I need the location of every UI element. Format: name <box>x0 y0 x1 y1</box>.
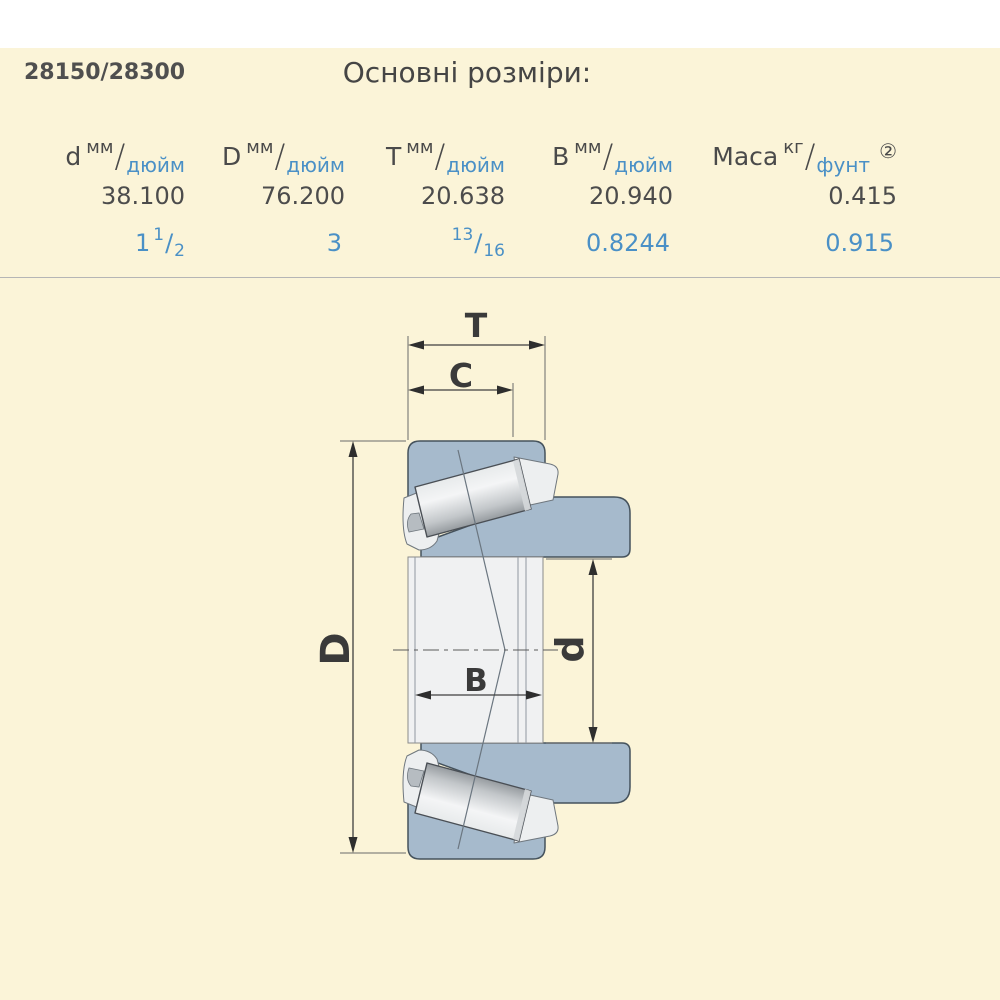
arrowhead <box>349 441 358 457</box>
cage-bottom-left <box>403 750 442 814</box>
outer-ring-top <box>408 441 545 501</box>
label-B: B <box>464 663 488 699</box>
arrowhead <box>415 691 431 700</box>
dim-symbol: D <box>222 142 241 171</box>
unit-slash: / <box>114 137 125 175</box>
arrowhead <box>589 559 598 575</box>
unit-kg: кг <box>783 137 803 158</box>
unit-inch: дюйм <box>126 153 185 177</box>
arrowhead <box>589 727 598 743</box>
inch-value-mass: 0.915 <box>673 220 897 266</box>
tapered-roller-top <box>415 459 531 537</box>
unit-mm: мм <box>86 137 113 158</box>
dim-symbol: d <box>65 142 81 171</box>
arrowhead <box>529 341 545 350</box>
arrowhead <box>349 837 358 853</box>
dim-symbol: T <box>386 142 401 171</box>
cage-top-right <box>514 457 558 507</box>
unit-slash: / <box>434 137 445 175</box>
inner-ring-bottom <box>421 743 630 803</box>
dim-symbol: B <box>552 142 569 171</box>
inner-ring-top <box>421 497 630 557</box>
unit-slash: / <box>274 137 285 175</box>
metric-value-D: 76.200 <box>185 176 345 216</box>
footnote-mark: ② <box>879 139 897 163</box>
outer-ring-bottom <box>408 799 545 859</box>
part-number: 28150/28300 <box>24 60 185 85</box>
metric-value-B: 20.940 <box>505 176 673 216</box>
label-T: T <box>465 306 488 345</box>
label-C: C <box>449 356 473 395</box>
arrowhead <box>526 691 542 700</box>
inch-value-D: 3 <box>185 220 345 266</box>
catalog-page: 28150/28300 Основні розміри: d мм / дюйм… <box>0 0 1000 1000</box>
cage-top-left <box>403 486 442 550</box>
page-title: Основні розміри: <box>343 56 591 89</box>
arrowhead <box>497 386 513 395</box>
inch-values-row: 1 1 / 2 3 13 / 16 0.82 <box>0 220 897 266</box>
unit-inch: дюйм <box>614 153 673 177</box>
unit-inch: дюйм <box>286 153 345 177</box>
page-body: 28150/28300 Основні розміри: d мм / дюйм… <box>0 48 1000 1000</box>
inch-value-T: 13 / 16 <box>345 220 505 266</box>
separator-line <box>0 277 1000 278</box>
inch-value-B: 0.8244 <box>505 220 673 266</box>
cage-claw-bottom <box>407 768 424 787</box>
roller-end-face-top <box>513 459 531 511</box>
unit-slash: / <box>602 137 613 175</box>
inner-ring-bore-section <box>408 557 543 743</box>
roller-end-face-bottom <box>513 789 531 841</box>
label-d: d <box>548 635 592 662</box>
unit-inch: дюйм <box>446 153 505 177</box>
unit-pound: фунт <box>816 153 870 177</box>
unit-mm: мм <box>246 137 273 158</box>
unit-mm: мм <box>574 137 601 158</box>
unit-slash: / <box>805 137 816 175</box>
metric-values-row: 38.100 76.200 20.638 20.940 0.415 <box>0 176 897 216</box>
label-D: D <box>313 632 359 665</box>
metric-value-T: 20.638 <box>345 176 505 216</box>
inch-value-d: 1 1 / 2 <box>0 220 185 266</box>
metric-value-d: 38.100 <box>0 176 185 216</box>
unit-mm: мм <box>406 137 433 158</box>
dim-symbol: Маса <box>712 142 778 171</box>
cage-claw-top <box>407 513 424 532</box>
cage-bottom-right <box>514 793 558 843</box>
roller-apex-line <box>458 450 505 849</box>
arrowhead <box>408 341 424 350</box>
tapered-roller-bottom <box>415 763 531 841</box>
arrowhead <box>408 386 424 395</box>
metric-value-mass: 0.415 <box>673 176 897 216</box>
